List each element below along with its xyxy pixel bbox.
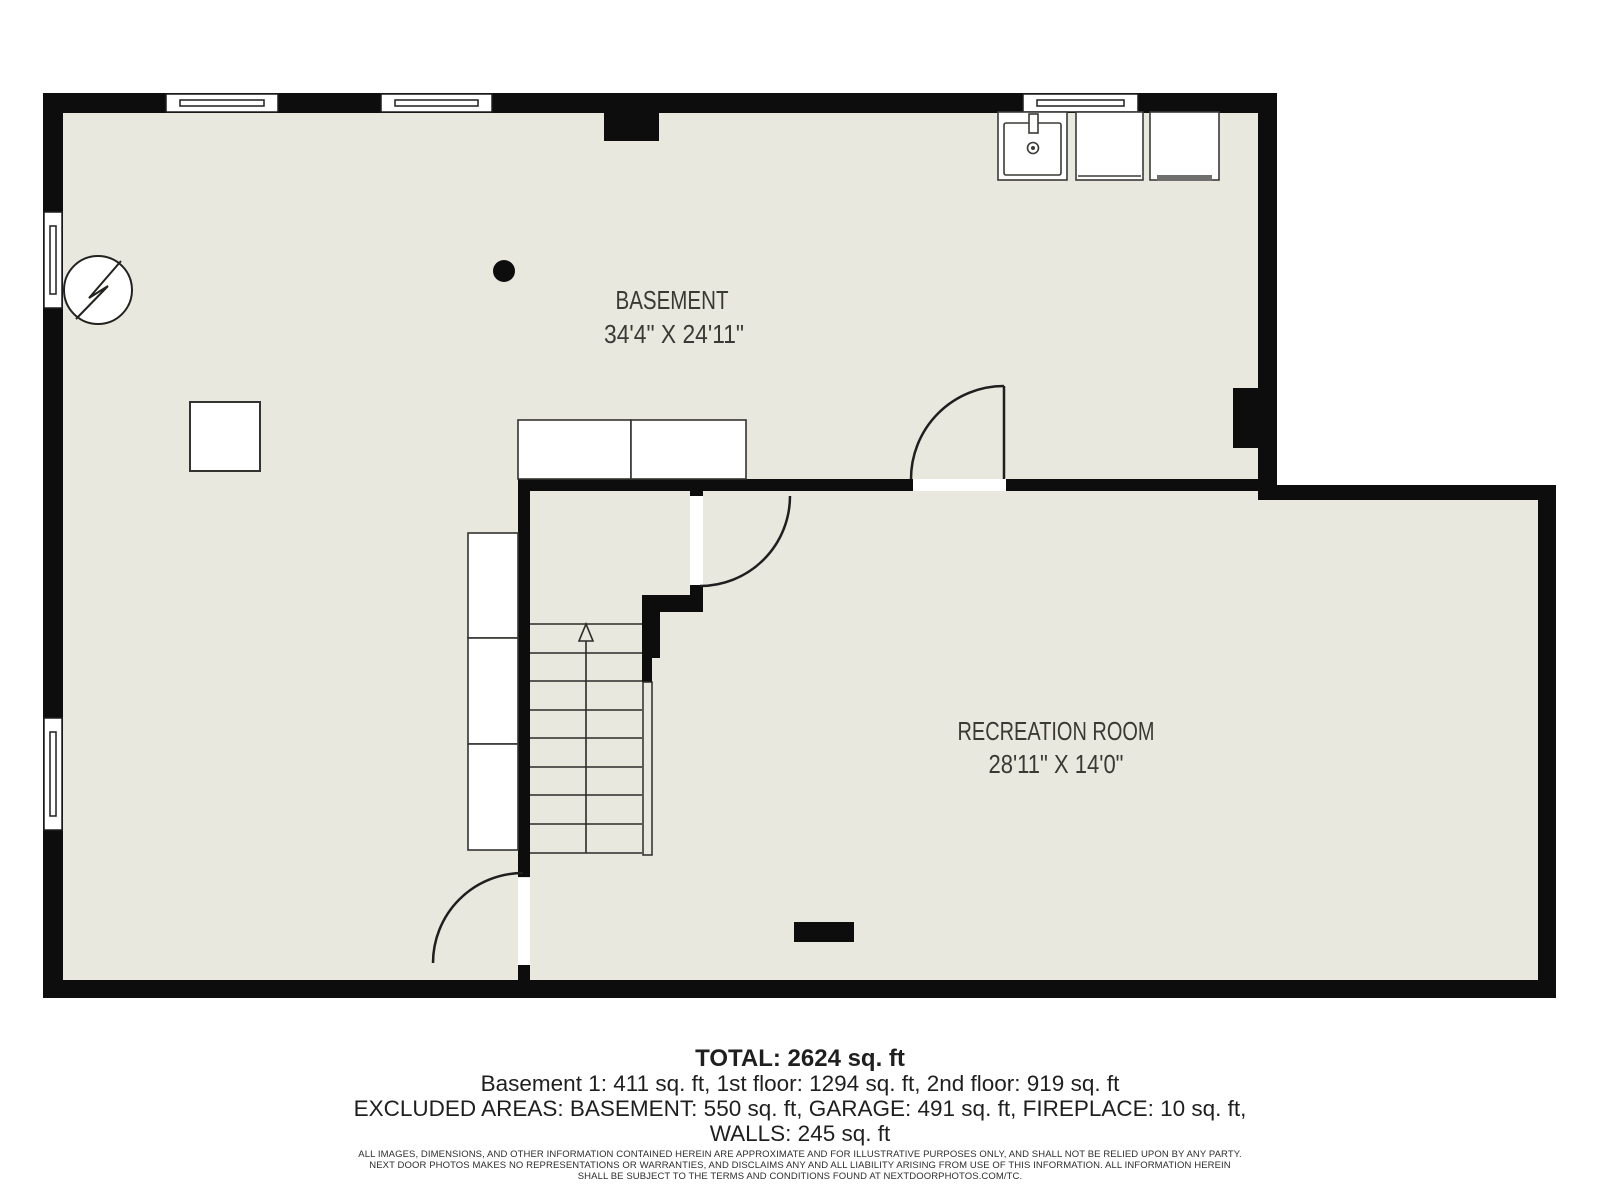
recreation-room-dimensions: 28'11" X 14'0" (989, 749, 1124, 779)
recreation-room-label: RECREATION ROOM (958, 716, 1155, 746)
wall-top-stub (604, 113, 659, 141)
wall-stair-hall-left (518, 479, 530, 877)
disclaimer-line-3: SHALL BE SUBJECT TO THE TERMS AND CONDIT… (0, 1172, 1600, 1183)
wall-bottom (43, 980, 1556, 998)
wall-stair-step-b (642, 595, 660, 658)
basement-dimensions: 34'4" X 24'11" (604, 319, 744, 349)
washer (1076, 112, 1143, 180)
window-top-2 (381, 94, 492, 112)
wall-right-recreation (1538, 485, 1556, 998)
window-top-1 (166, 94, 278, 112)
basement-label: BASEMENT (616, 285, 729, 315)
window-left-1 (44, 212, 62, 308)
wall-stair-hall-left-stub (518, 965, 530, 980)
support-column (493, 260, 515, 282)
window-left-2 (44, 718, 62, 830)
floor-plan-drawing: BASEMENT 34'4" X 24'11" RECREATION ROOM … (0, 0, 1600, 1200)
utility-sink (998, 112, 1067, 180)
floor-plan-page: BASEMENT 34'4" X 24'11" RECREATION ROOM … (0, 0, 1600, 1200)
floor-areas: Basement 1: 411 sq. ft, 1st floor: 1294 … (0, 1071, 1600, 1096)
wall-basement-recreation-right (1006, 479, 1259, 491)
wall-stair-step-c (642, 658, 652, 682)
disclaimer-line-2: NEXT DOOR PHOTOS MAKES NO REPRESENTATION… (0, 1161, 1600, 1172)
furnace-pad (190, 402, 260, 471)
excluded-areas: EXCLUDED AREAS: BASEMENT: 550 sq. ft, GA… (0, 1096, 1600, 1121)
window-top-3 (1023, 94, 1138, 112)
area-summary: TOTAL: 2624 sq. ft Basement 1: 411 sq. f… (0, 1046, 1600, 1146)
wall-basement-recreation-left (518, 479, 913, 491)
disclaimer: ALL IMAGES, DIMENSIONS, AND OTHER INFORM… (0, 1150, 1600, 1182)
electrical-panel-icon (64, 256, 132, 324)
dryer (1150, 112, 1219, 181)
counter (518, 420, 746, 479)
wall-pillar (1233, 388, 1259, 448)
walls-area: WALLS: 245 sq. ft (0, 1121, 1600, 1146)
fireplace (794, 922, 854, 942)
floor-area (63, 113, 1538, 980)
door-opening-basement-recreation (913, 479, 1006, 491)
total-area: TOTAL: 2624 sq. ft (0, 1046, 1600, 1071)
storage-closets (468, 533, 518, 850)
door-opening-stair-hall (690, 496, 703, 585)
door-opening-basement-bottom (518, 878, 530, 965)
wall-top-recreation (1258, 485, 1556, 500)
wall-right-basement (1258, 93, 1277, 500)
